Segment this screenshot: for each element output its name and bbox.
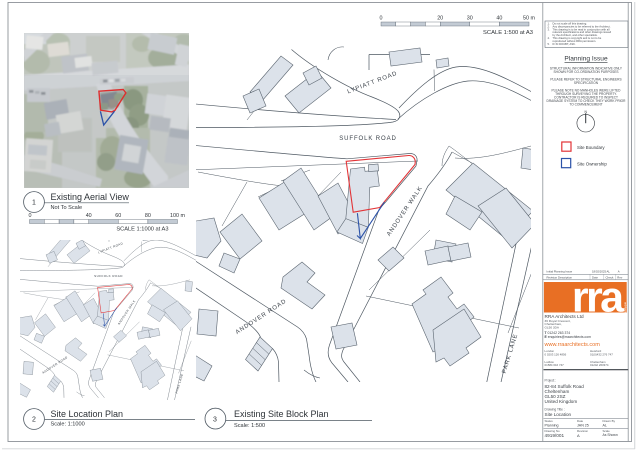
svg-text:30: 30 [467, 16, 473, 22]
svg-text:Site Location: Site Location [545, 412, 572, 417]
svg-text:SHOWN FOR CO-ORDINATION PURPOS: SHOWN FOR CO-ORDINATION PURPOSES [554, 70, 619, 74]
svg-text:Date: Date [577, 419, 583, 423]
svg-text:Rev: Rev [617, 275, 623, 279]
svg-text:80: 80 [145, 213, 151, 219]
svg-text:0: 0 [29, 213, 32, 219]
svg-text:SCALE 1:1000 at A3: SCALE 1:1000 at A3 [116, 226, 168, 232]
svg-text:E enquiries@rraarchitects.com: E enquiries@rraarchitects.com [545, 335, 592, 339]
svg-text:Revision Description: Revision Description [547, 275, 573, 279]
svg-text:18/02/2025: 18/02/2025 [592, 270, 606, 274]
svg-text:Scale: 1:1000: Scale: 1:1000 [51, 422, 85, 428]
svg-text:Initial Planning Issue: Initial Planning Issue [547, 270, 573, 274]
svg-text:Planning Issue: Planning Issue [564, 56, 608, 63]
svg-text:5.: 5. [548, 42, 550, 46]
svg-text:Site Ownership: Site Ownership [577, 161, 607, 166]
svg-text:Scale: Scale [603, 429, 611, 433]
svg-text:4919/001: 4919/001 [545, 433, 565, 438]
svg-text:www.rraarchitects.com: www.rraarchitects.com [544, 342, 601, 348]
svg-text:Drawing No: Drawing No [545, 429, 560, 433]
svg-text:20: 20 [437, 16, 443, 22]
svg-text:AL: AL [603, 423, 607, 427]
svg-text:01584 616 747: 01584 616 747 [545, 363, 565, 367]
svg-text:Existing Site Block Plan: Existing Site Block Plan [234, 409, 329, 419]
svg-text:0: 0 [380, 16, 383, 22]
svg-text:Existing Aerial View: Existing Aerial View [51, 192, 130, 202]
svg-text:Project :: Project : [545, 379, 557, 383]
svg-text:4.: 4. [548, 36, 550, 40]
svg-text:100 m: 100 m [170, 213, 185, 219]
svg-text:A: A [618, 270, 620, 274]
svg-text:Site Boundary: Site Boundary [577, 145, 605, 150]
svg-text:60: 60 [115, 213, 121, 219]
svg-text:Not To Scale: Not To Scale [51, 205, 83, 211]
svg-text:IF IN DOUBT, ASK.: IF IN DOUBT, ASK. [553, 42, 576, 46]
svg-text:GL50 3DA: GL50 3DA [545, 325, 560, 329]
svg-text:Check: Check [606, 275, 615, 279]
svg-text:JAN 25: JAN 25 [577, 423, 589, 427]
svg-text:2: 2 [32, 417, 36, 424]
svg-text:SCALE 1:500 at A3: SCALE 1:500 at A3 [483, 30, 533, 36]
svg-text:40: 40 [496, 16, 502, 22]
svg-text:United Kingdom: United Kingdom [545, 399, 578, 404]
svg-text:Scale: 1:500: Scale: 1:500 [234, 423, 265, 429]
svg-text:40: 40 [86, 213, 92, 219]
svg-text:Date: Date [592, 275, 598, 279]
svg-text:A: A [577, 433, 580, 438]
svg-text:50 m: 50 m [523, 16, 535, 22]
svg-text:1: 1 [32, 199, 36, 206]
svg-text:Drawn By: Drawn By [603, 419, 616, 423]
svg-text:Drawing Title :: Drawing Title : [545, 408, 565, 412]
svg-text:SPECIFICATION: SPECIFICATION [574, 81, 599, 85]
svg-text:0 0203 126 4856: 0 0203 126 4856 [545, 353, 567, 357]
svg-text:01242 263374: 01242 263374 [590, 363, 609, 367]
svg-text:AL: AL [607, 270, 611, 274]
svg-text:3: 3 [213, 417, 217, 424]
svg-text:Planning: Planning [545, 423, 559, 427]
svg-text:Status: Status [545, 419, 554, 423]
svg-text:Site Location Plan: Site Location Plan [51, 409, 124, 419]
svg-text:As Shown: As Shown [603, 433, 618, 437]
svg-text:3.: 3. [548, 27, 550, 31]
svg-text:TO COMMENCEMENT: TO COMMENCEMENT [569, 103, 602, 107]
svg-text:01(0)432 276 747: 01(0)432 276 747 [590, 353, 613, 357]
